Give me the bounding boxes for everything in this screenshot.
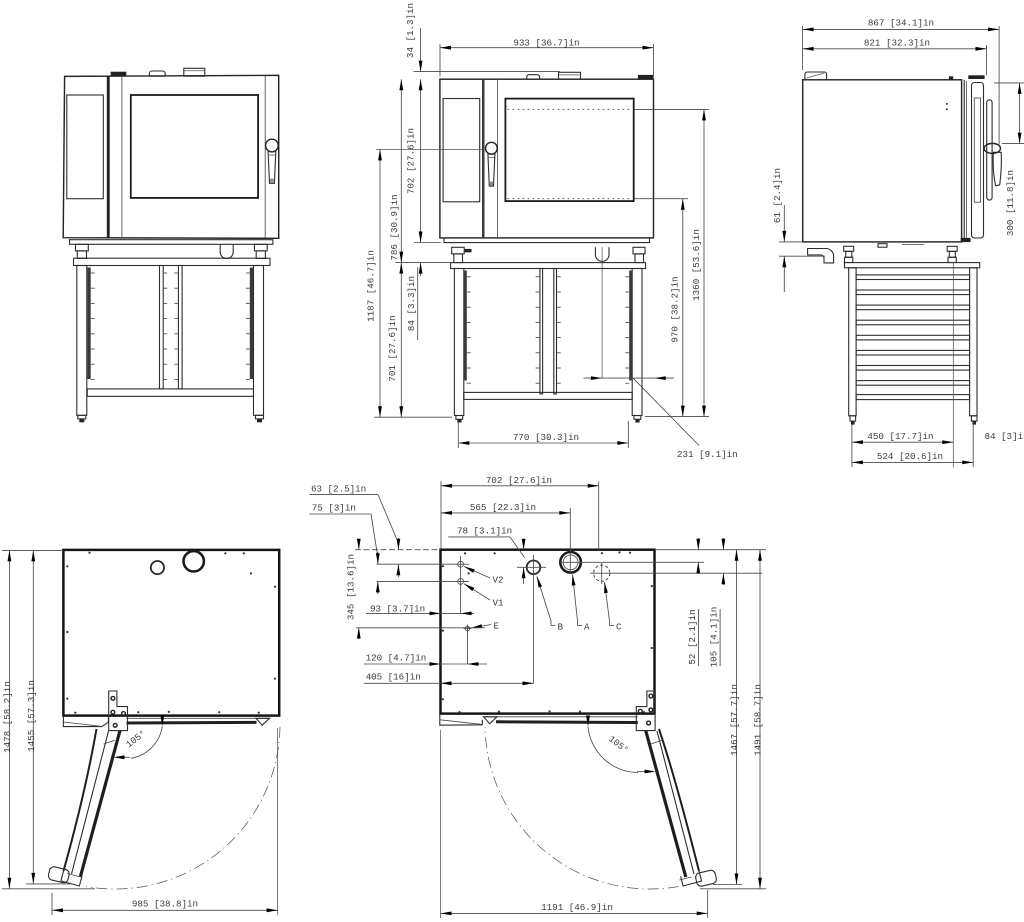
svg-text:C: C	[616, 622, 622, 633]
svg-text:1455 [57.3]in: 1455 [57.3]in	[26, 680, 37, 752]
svg-text:345 [13.6]in: 345 [13.6]in	[346, 554, 357, 620]
svg-text:84 [3.3]in: 84 [3.3]in	[406, 276, 417, 331]
svg-text:524 [20.6]in: 524 [20.6]in	[877, 451, 943, 462]
svg-text:867 [34.1]in: 867 [34.1]in	[868, 18, 934, 29]
svg-text:1467 [57.7]in: 1467 [57.7]in	[729, 684, 740, 756]
svg-text:786 [30.9]in: 786 [30.9]in	[389, 194, 400, 260]
svg-text:84 [3]in: 84 [3]in	[985, 431, 1024, 442]
svg-text:78 [3.1]in: 78 [3.1]in	[457, 526, 512, 537]
svg-text:1360 [53.6]in: 1360 [53.6]in	[691, 229, 702, 301]
svg-text:565 [22.3]in: 565 [22.3]in	[470, 502, 536, 513]
svg-text:V1: V1	[493, 598, 505, 609]
svg-text:75 [3]in: 75 [3]in	[312, 503, 356, 514]
svg-text:1191 [46.9]in: 1191 [46.9]in	[541, 902, 613, 913]
svg-text:63 [2.5]in: 63 [2.5]in	[311, 484, 366, 495]
svg-text:1491 [58.7]in: 1491 [58.7]in	[753, 684, 764, 756]
svg-text:105 [4.1]in: 105 [4.1]in	[708, 607, 719, 668]
svg-text:93 [3.7]in: 93 [3.7]in	[370, 604, 425, 615]
svg-text:E: E	[494, 621, 500, 632]
svg-text:231 [9.1]in: 231 [9.1]in	[677, 449, 738, 460]
svg-text:702 [27.6]in: 702 [27.6]in	[486, 475, 552, 486]
svg-text:970 [38.2]in: 970 [38.2]in	[670, 276, 681, 342]
svg-text:61 [2.4]in: 61 [2.4]in	[772, 168, 783, 223]
svg-text:300 [11.8]in: 300 [11.8]in	[1005, 170, 1016, 236]
svg-text:701 [27.6]in: 701 [27.6]in	[387, 315, 398, 381]
svg-text:34 [1.3]in: 34 [1.3]in	[405, 3, 416, 58]
svg-text:821 [32.3]in: 821 [32.3]in	[864, 38, 930, 49]
svg-text:985 [38.8]in: 985 [38.8]in	[132, 899, 198, 910]
svg-text:450 [17.7]in: 450 [17.7]in	[867, 431, 933, 442]
svg-text:702 [27.6]in: 702 [27.6]in	[405, 128, 416, 194]
svg-text:1187 [46.7]in: 1187 [46.7]in	[366, 250, 377, 322]
svg-text:A: A	[584, 622, 590, 633]
svg-text:V2: V2	[493, 575, 504, 586]
svg-text:405 [16]in: 405 [16]in	[366, 672, 421, 683]
svg-text:1478 [58.2]in: 1478 [58.2]in	[2, 681, 13, 753]
svg-text:933 [36.7]in: 933 [36.7]in	[513, 38, 579, 49]
svg-text:52 [2.1]in: 52 [2.1]in	[687, 609, 698, 664]
svg-text:120 [4.7]in: 120 [4.7]in	[366, 653, 427, 664]
svg-text:770 [30.3]in: 770 [30.3]in	[513, 432, 579, 443]
svg-text:B: B	[558, 622, 564, 633]
